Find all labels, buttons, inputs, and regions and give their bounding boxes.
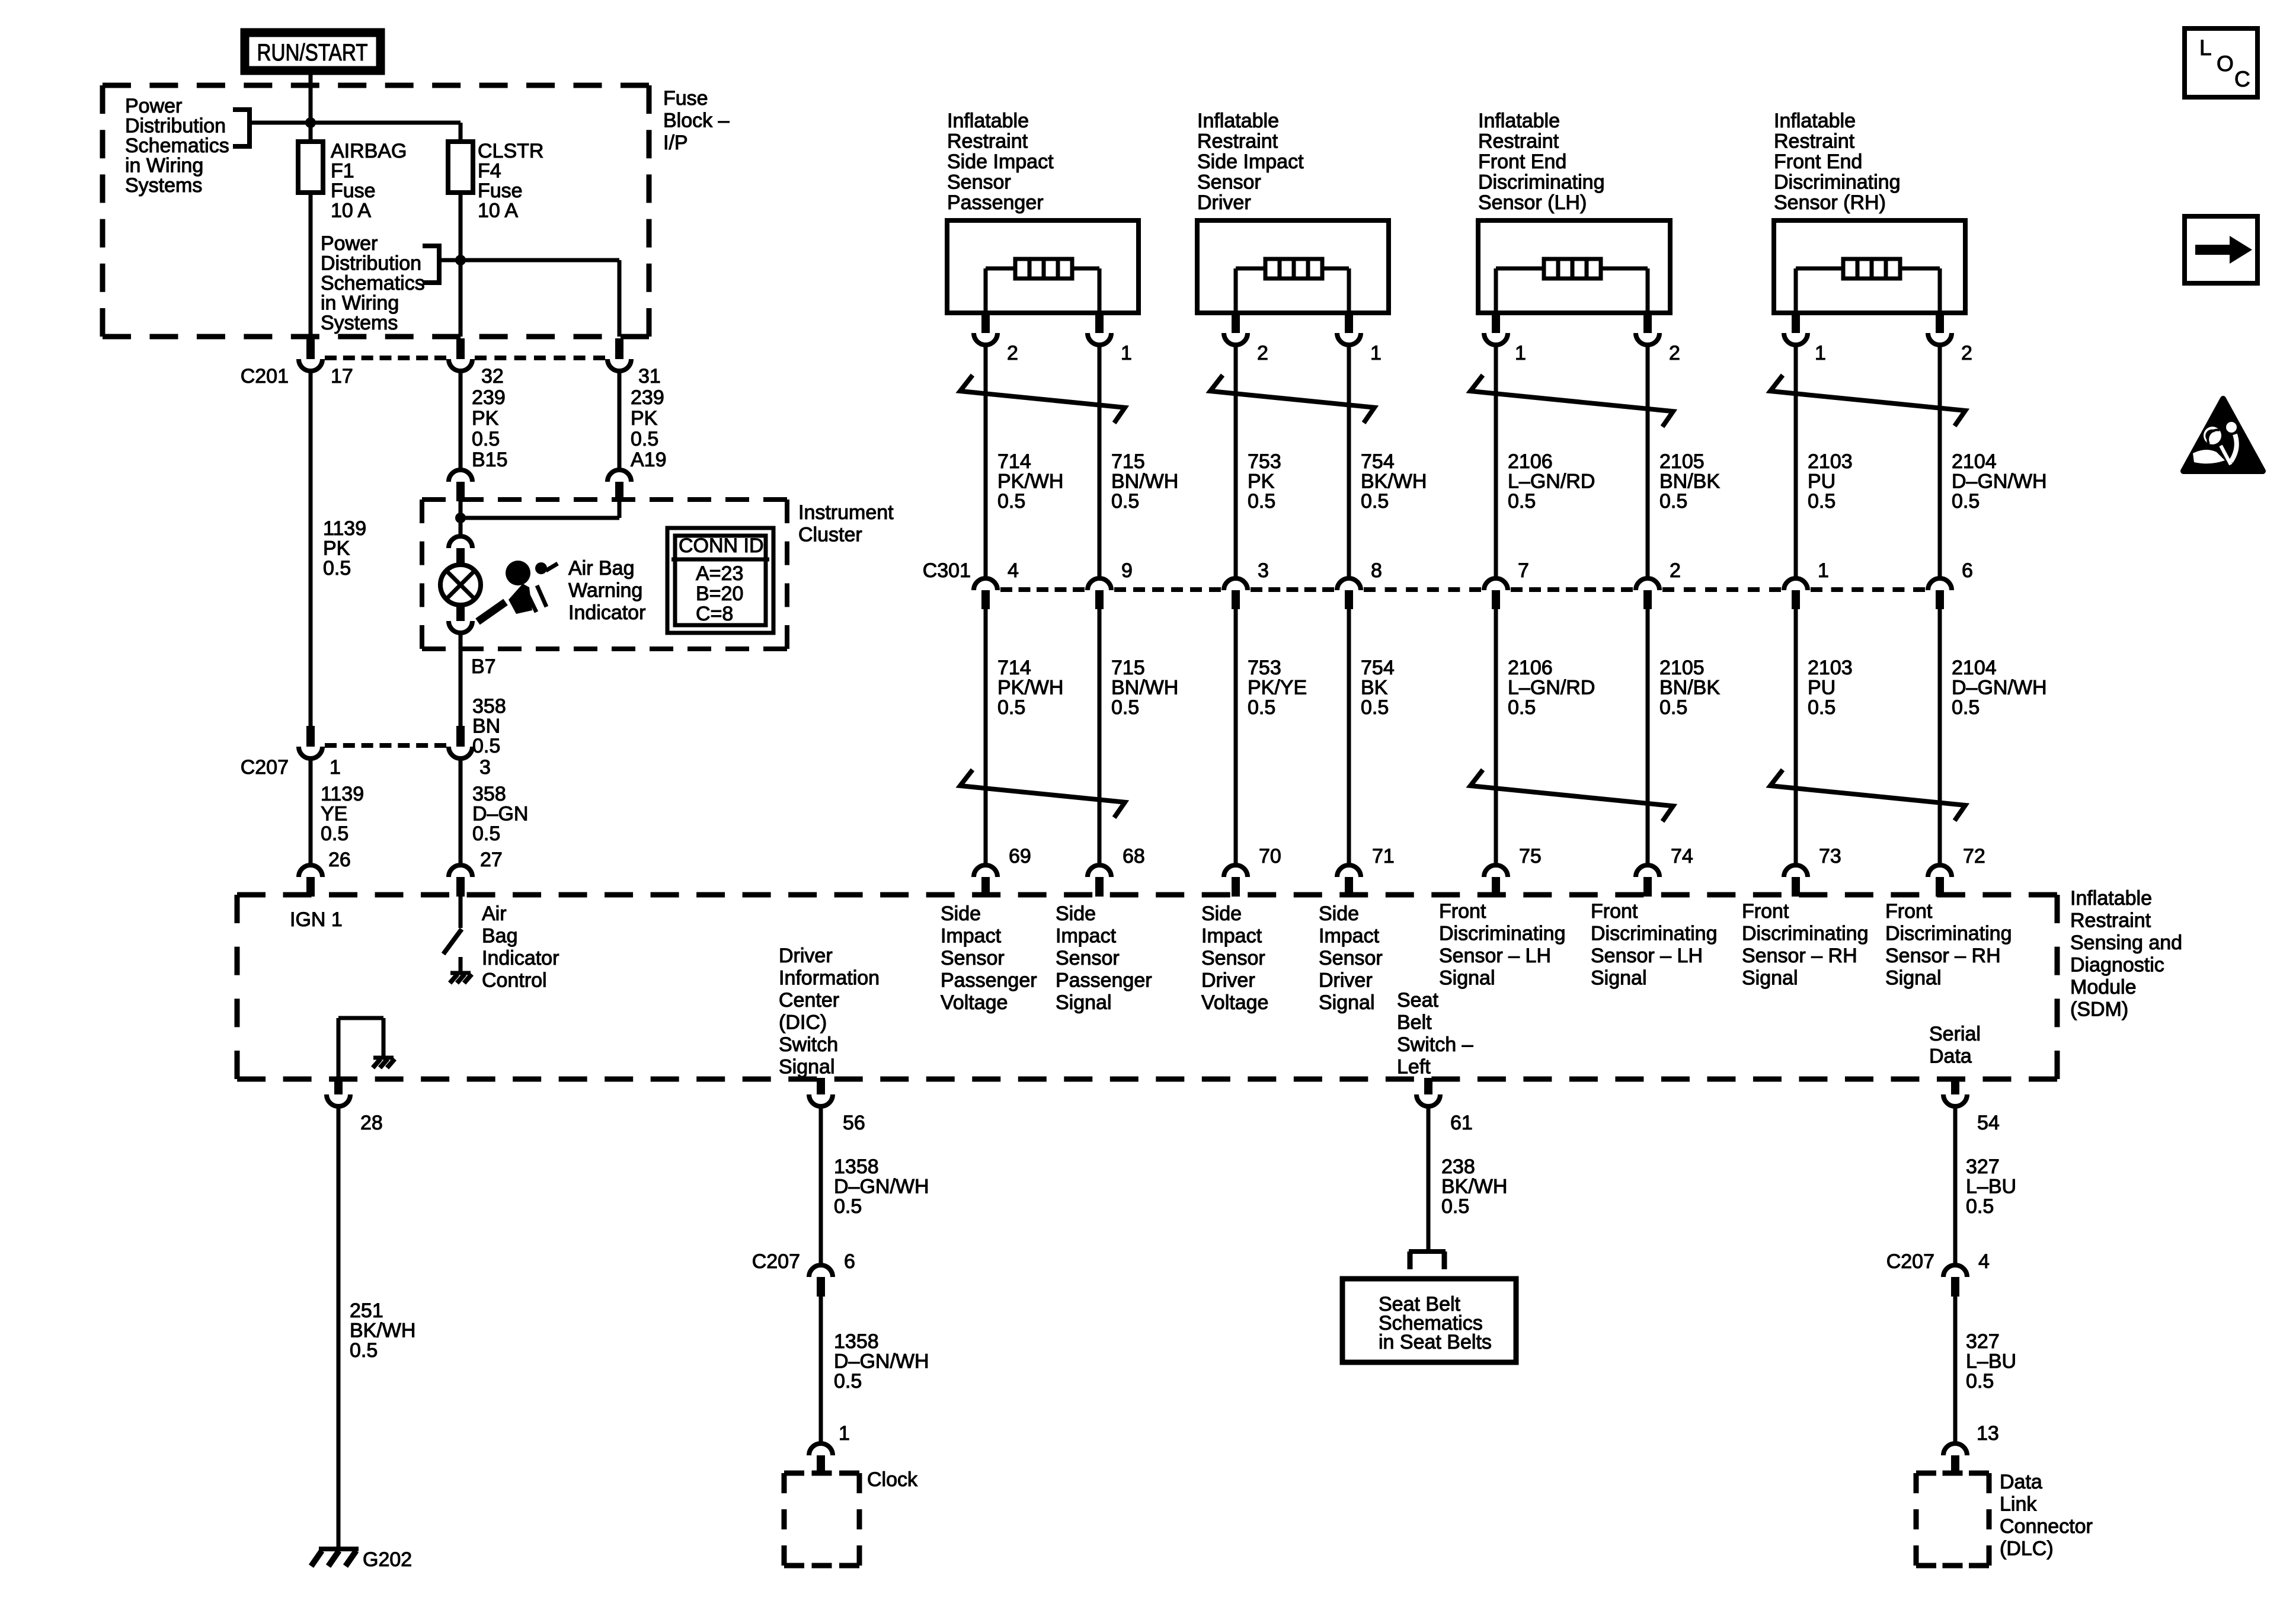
svg-text:358: 358 xyxy=(472,783,506,805)
svg-text:Sensor (LH): Sensor (LH) xyxy=(1478,191,1587,214)
svg-text:Driver: Driver xyxy=(779,945,833,967)
svg-text:Driver: Driver xyxy=(1201,969,1255,992)
svg-text:Switch –: Switch – xyxy=(1397,1033,1473,1056)
svg-text:Side Impact: Side Impact xyxy=(947,151,1054,173)
svg-text:Module: Module xyxy=(2070,976,2137,998)
svg-text:D–GN/WH: D–GN/WH xyxy=(1952,677,2047,699)
svg-text:Discriminating: Discriminating xyxy=(1774,171,1901,194)
svg-text:68: 68 xyxy=(1123,845,1145,868)
svg-text:Sensing and: Sensing and xyxy=(2070,932,2182,954)
svg-text:17: 17 xyxy=(331,365,353,388)
svg-text:0.5: 0.5 xyxy=(1952,490,1980,513)
svg-text:71: 71 xyxy=(1372,845,1395,868)
svg-text:754: 754 xyxy=(1361,450,1395,473)
svg-text:Control: Control xyxy=(482,969,547,992)
svg-text:1139: 1139 xyxy=(321,783,364,805)
svg-text:Driver: Driver xyxy=(1197,191,1251,214)
svg-text:B15: B15 xyxy=(472,449,508,471)
svg-text:10 A: 10 A xyxy=(331,200,371,222)
svg-text:Restraint: Restraint xyxy=(947,130,1028,153)
svg-text:70: 70 xyxy=(1259,845,1281,868)
svg-text:Front: Front xyxy=(1439,900,1486,923)
svg-text:Warning: Warning xyxy=(568,580,642,602)
svg-text:Bag: Bag xyxy=(482,925,518,948)
svg-text:D–GN/WH: D–GN/WH xyxy=(834,1176,929,1198)
svg-text:0.5: 0.5 xyxy=(323,557,351,580)
svg-text:Power: Power xyxy=(125,95,182,117)
svg-text:0.5: 0.5 xyxy=(1966,1370,1994,1393)
svg-text:715: 715 xyxy=(1111,450,1145,473)
svg-text:6: 6 xyxy=(844,1250,855,1273)
svg-text:Power: Power xyxy=(321,232,378,255)
svg-text:Front End: Front End xyxy=(1774,151,1862,173)
svg-text:PK: PK xyxy=(323,537,350,560)
svg-text:I/P: I/P xyxy=(663,132,688,154)
svg-text:Driver: Driver xyxy=(1319,969,1373,992)
svg-text:4: 4 xyxy=(1978,1250,1990,1273)
svg-text:BK/WH: BK/WH xyxy=(1361,470,1427,493)
svg-text:2105: 2105 xyxy=(1659,450,1705,473)
svg-text:Restraint: Restraint xyxy=(1774,130,1855,153)
svg-text:0.5: 0.5 xyxy=(1361,490,1389,513)
svg-text:C=8: C=8 xyxy=(696,603,733,625)
svg-text:C207: C207 xyxy=(241,756,289,779)
svg-text:56: 56 xyxy=(843,1112,865,1134)
svg-text:7: 7 xyxy=(1518,559,1529,582)
svg-text:PU: PU xyxy=(1808,677,1835,699)
svg-text:2106: 2106 xyxy=(1508,450,1553,473)
svg-text:Side: Side xyxy=(1319,902,1359,925)
svg-text:1: 1 xyxy=(1515,342,1526,364)
svg-text:Sensor: Sensor xyxy=(947,171,1011,194)
svg-text:(DLC): (DLC) xyxy=(2000,1538,2054,1560)
svg-text:Discriminating: Discriminating xyxy=(1742,923,1869,945)
svg-text:0.5: 0.5 xyxy=(997,490,1025,513)
svg-text:Air: Air xyxy=(482,902,507,925)
svg-text:Distribution: Distribution xyxy=(125,115,226,137)
svg-text:Signal: Signal xyxy=(1591,967,1647,990)
svg-text:PK: PK xyxy=(631,407,658,430)
svg-text:Voltage: Voltage xyxy=(1201,991,1268,1014)
svg-text:Inflatable: Inflatable xyxy=(1478,110,1560,132)
svg-text:Connector: Connector xyxy=(2000,1515,2093,1538)
svg-text:BN/WH: BN/WH xyxy=(1111,470,1178,493)
svg-text:0.5: 0.5 xyxy=(834,1195,862,1218)
svg-text:74: 74 xyxy=(1671,845,1693,868)
svg-text:Fuse: Fuse xyxy=(478,180,523,202)
svg-text:4: 4 xyxy=(1008,559,1019,582)
svg-text:BK/WH: BK/WH xyxy=(1441,1176,1507,1198)
svg-text:PK/YE: PK/YE xyxy=(1248,677,1307,699)
svg-text:2: 2 xyxy=(1961,342,1972,364)
svg-text:Inflatable: Inflatable xyxy=(1197,110,1279,132)
svg-text:13: 13 xyxy=(1977,1422,1999,1445)
svg-text:BN/BK: BN/BK xyxy=(1659,470,1720,493)
svg-text:A19: A19 xyxy=(631,449,667,471)
svg-text:L–BU: L–BU xyxy=(1966,1176,2016,1198)
svg-text:10 A: 10 A xyxy=(478,200,518,222)
svg-text:0.5: 0.5 xyxy=(1248,696,1275,719)
svg-text:Block –: Block – xyxy=(663,110,730,132)
svg-text:1: 1 xyxy=(839,1422,850,1445)
svg-text:2104: 2104 xyxy=(1952,657,1997,679)
svg-text:YE: YE xyxy=(321,803,347,825)
svg-text:L: L xyxy=(2199,36,2212,60)
svg-text:L–BU: L–BU xyxy=(1966,1350,2016,1373)
svg-text:(SDM): (SDM) xyxy=(2070,998,2128,1021)
svg-text:358: 358 xyxy=(472,695,506,718)
svg-text:0.5: 0.5 xyxy=(1966,1195,1994,1218)
svg-text:Side: Side xyxy=(941,902,981,925)
svg-text:0.5: 0.5 xyxy=(631,428,658,450)
svg-text:Schematics: Schematics xyxy=(321,272,425,295)
svg-text:Belt: Belt xyxy=(1397,1012,1432,1034)
svg-text:0.5: 0.5 xyxy=(1952,696,1980,719)
svg-text:L–GN/RD: L–GN/RD xyxy=(1508,677,1595,699)
svg-text:BN/BK: BN/BK xyxy=(1659,677,1720,699)
svg-text:BN/WH: BN/WH xyxy=(1111,677,1178,699)
svg-text:1: 1 xyxy=(330,756,341,779)
svg-text:Serial: Serial xyxy=(1929,1023,1981,1045)
svg-text:A=23: A=23 xyxy=(696,562,743,585)
svg-text:Signal: Signal xyxy=(1319,991,1375,1014)
svg-text:AIRBAG: AIRBAG xyxy=(331,140,407,162)
svg-text:Signal: Signal xyxy=(1056,991,1112,1014)
svg-text:Sensor: Sensor xyxy=(1201,947,1265,969)
svg-text:Left: Left xyxy=(1397,1056,1431,1078)
svg-text:Distribution: Distribution xyxy=(321,252,421,275)
svg-text:Data: Data xyxy=(2000,1471,2042,1493)
svg-text:714: 714 xyxy=(997,657,1031,679)
svg-text:1: 1 xyxy=(1121,342,1132,364)
svg-text:0.5: 0.5 xyxy=(472,428,500,450)
svg-text:Indicator: Indicator xyxy=(482,947,559,969)
svg-text:28: 28 xyxy=(360,1112,383,1134)
svg-text:0.5: 0.5 xyxy=(1808,696,1835,719)
svg-text:2: 2 xyxy=(1669,342,1680,364)
svg-text:Front: Front xyxy=(1885,900,1933,923)
svg-text:Air Bag: Air Bag xyxy=(568,557,635,580)
svg-text:Signal: Signal xyxy=(1742,967,1798,990)
svg-text:Sensor (RH): Sensor (RH) xyxy=(1774,191,1886,214)
svg-text:Impact: Impact xyxy=(1201,925,1262,948)
svg-text:Fuse: Fuse xyxy=(331,180,376,202)
svg-text:27: 27 xyxy=(480,849,503,871)
svg-text:in Seat Belts: in Seat Belts xyxy=(1379,1331,1492,1353)
svg-text:0.5: 0.5 xyxy=(1659,490,1687,513)
svg-text:2: 2 xyxy=(1670,559,1681,582)
svg-text:2: 2 xyxy=(1007,342,1018,364)
svg-text:Systems: Systems xyxy=(125,174,202,197)
svg-text:Indicator: Indicator xyxy=(568,601,645,624)
svg-text:B=20: B=20 xyxy=(696,582,743,605)
svg-text:D–GN/WH: D–GN/WH xyxy=(834,1350,929,1373)
svg-text:Restraint: Restraint xyxy=(1478,130,1559,153)
svg-text:61: 61 xyxy=(1450,1112,1473,1134)
svg-text:0.5: 0.5 xyxy=(1508,490,1536,513)
svg-text:Side: Side xyxy=(1201,902,1242,925)
svg-text:BN: BN xyxy=(472,715,500,738)
svg-text:Sensor – RH: Sensor – RH xyxy=(1885,945,2001,967)
svg-text:D–GN: D–GN xyxy=(472,803,528,825)
svg-text:75: 75 xyxy=(1519,845,1542,868)
svg-text:Passenger: Passenger xyxy=(941,969,1037,992)
svg-text:1: 1 xyxy=(1815,342,1826,364)
svg-text:251: 251 xyxy=(350,1299,383,1322)
svg-text:Side Impact: Side Impact xyxy=(1197,151,1304,173)
svg-text:C207: C207 xyxy=(1886,1250,1934,1273)
svg-text:B7: B7 xyxy=(471,655,496,678)
svg-text:G202: G202 xyxy=(363,1548,412,1571)
svg-text:Instrument: Instrument xyxy=(798,501,894,524)
svg-text:73: 73 xyxy=(1819,845,1841,868)
svg-text:1: 1 xyxy=(1818,559,1829,582)
svg-text:715: 715 xyxy=(1111,657,1145,679)
svg-text:in Wiring: in Wiring xyxy=(321,292,399,315)
svg-text:Impact: Impact xyxy=(1319,925,1380,948)
svg-text:1358: 1358 xyxy=(834,1156,879,1178)
svg-text:2104: 2104 xyxy=(1952,450,1997,473)
svg-text:2103: 2103 xyxy=(1808,657,1853,679)
svg-text:238: 238 xyxy=(1441,1156,1475,1178)
svg-text:1358: 1358 xyxy=(834,1330,879,1353)
svg-text:31: 31 xyxy=(638,365,661,388)
svg-text:F4: F4 xyxy=(478,160,501,183)
svg-text:26: 26 xyxy=(328,849,351,871)
svg-text:(DIC): (DIC) xyxy=(779,1012,827,1034)
svg-text:0.5: 0.5 xyxy=(1361,696,1389,719)
svg-text:3: 3 xyxy=(479,756,491,779)
svg-text:PK: PK xyxy=(472,407,499,430)
svg-text:CONN ID: CONN ID xyxy=(679,534,764,557)
svg-text:Restraint: Restraint xyxy=(1197,130,1278,153)
svg-text:0.5: 0.5 xyxy=(472,735,500,757)
svg-text:0.5: 0.5 xyxy=(1248,490,1275,513)
svg-text:72: 72 xyxy=(1963,845,1985,868)
svg-text:Signal: Signal xyxy=(1885,967,1942,990)
svg-text:0.5: 0.5 xyxy=(997,696,1025,719)
svg-text:2103: 2103 xyxy=(1808,450,1853,473)
svg-text:Discriminating: Discriminating xyxy=(1885,923,2012,945)
svg-text:8: 8 xyxy=(1371,559,1382,582)
svg-text:Seat: Seat xyxy=(1397,989,1438,1012)
svg-text:0.5: 0.5 xyxy=(1111,490,1139,513)
svg-text:F1: F1 xyxy=(331,160,354,183)
svg-text:Sensor – RH: Sensor – RH xyxy=(1742,945,1857,967)
svg-text:Impact: Impact xyxy=(1056,925,1117,948)
svg-text:Cluster: Cluster xyxy=(798,524,862,546)
svg-text:753: 753 xyxy=(1248,657,1281,679)
svg-text:239: 239 xyxy=(631,386,664,409)
svg-text:Switch: Switch xyxy=(779,1033,838,1056)
svg-text:0.5: 0.5 xyxy=(834,1370,862,1393)
svg-text:327: 327 xyxy=(1966,1330,2000,1353)
svg-text:Signal: Signal xyxy=(1439,967,1495,990)
svg-text:Front: Front xyxy=(1742,900,1789,923)
svg-text:Sensor: Sensor xyxy=(1056,947,1120,969)
svg-text:0.5: 0.5 xyxy=(350,1339,378,1362)
svg-text:0.5: 0.5 xyxy=(1111,696,1139,719)
svg-text:O: O xyxy=(2217,52,2234,76)
svg-text:9: 9 xyxy=(1121,559,1133,582)
svg-text:CLSTR: CLSTR xyxy=(478,140,543,162)
svg-text:PK: PK xyxy=(1248,470,1275,493)
svg-text:PK/WH: PK/WH xyxy=(997,470,1063,493)
svg-text:Data: Data xyxy=(1929,1045,1972,1068)
svg-text:3: 3 xyxy=(1258,559,1269,582)
svg-text:Inflatable: Inflatable xyxy=(2070,887,2152,910)
svg-text:327: 327 xyxy=(1966,1156,2000,1178)
svg-text:Information: Information xyxy=(779,967,880,990)
svg-text:Impact: Impact xyxy=(941,925,1002,948)
svg-text:0.5: 0.5 xyxy=(321,822,348,845)
svg-text:C207: C207 xyxy=(752,1250,800,1273)
svg-text:C201: C201 xyxy=(241,365,289,388)
svg-text:1: 1 xyxy=(1370,342,1382,364)
svg-text:Passenger: Passenger xyxy=(1056,969,1152,992)
svg-text:IGN 1: IGN 1 xyxy=(290,908,343,931)
svg-text:Sensor – LH: Sensor – LH xyxy=(1591,945,1703,967)
svg-text:753: 753 xyxy=(1248,450,1281,473)
svg-text:Restraint: Restraint xyxy=(2070,910,2151,932)
svg-text:BK/WH: BK/WH xyxy=(350,1320,415,1342)
svg-text:Diagnostic: Diagnostic xyxy=(2070,954,2164,977)
svg-text:0.5: 0.5 xyxy=(1808,490,1835,513)
svg-text:239: 239 xyxy=(472,386,506,409)
svg-text:Front End: Front End xyxy=(1478,151,1566,173)
svg-text:RUN/START: RUN/START xyxy=(257,40,368,66)
svg-text:Sensor: Sensor xyxy=(941,947,1005,969)
svg-text:PU: PU xyxy=(1808,470,1835,493)
svg-text:2105: 2105 xyxy=(1659,657,1705,679)
svg-text:754: 754 xyxy=(1361,657,1395,679)
svg-text:Inflatable: Inflatable xyxy=(1774,110,1856,132)
svg-text:L–GN/RD: L–GN/RD xyxy=(1508,470,1595,493)
svg-text:BK: BK xyxy=(1361,677,1388,699)
svg-text:6: 6 xyxy=(1962,559,1973,582)
svg-text:0.5: 0.5 xyxy=(1508,696,1536,719)
svg-text:Fuse: Fuse xyxy=(663,87,708,110)
svg-text:Center: Center xyxy=(779,989,839,1012)
svg-text:Front: Front xyxy=(1591,900,1638,923)
svg-text:Clock: Clock xyxy=(867,1468,918,1491)
svg-text:Discriminating: Discriminating xyxy=(1478,171,1605,194)
svg-text:Schematics: Schematics xyxy=(125,135,229,157)
svg-text:C301: C301 xyxy=(923,559,971,582)
svg-text:Sensor: Sensor xyxy=(1319,947,1383,969)
svg-text:Sensor: Sensor xyxy=(1197,171,1261,194)
svg-text:Discriminating: Discriminating xyxy=(1591,923,1718,945)
svg-text:0.5: 0.5 xyxy=(472,822,500,845)
svg-text:714: 714 xyxy=(997,450,1031,473)
svg-text:2106: 2106 xyxy=(1508,657,1553,679)
svg-text:C: C xyxy=(2234,67,2250,91)
svg-text:Inflatable: Inflatable xyxy=(947,110,1029,132)
svg-text:0.5: 0.5 xyxy=(1659,696,1687,719)
svg-text:54: 54 xyxy=(1977,1112,2000,1134)
svg-text:1139: 1139 xyxy=(323,517,366,540)
svg-text:0.5: 0.5 xyxy=(1441,1195,1469,1218)
svg-text:PK/WH: PK/WH xyxy=(997,677,1063,699)
svg-text:in Wiring: in Wiring xyxy=(125,155,203,177)
svg-text:Passenger: Passenger xyxy=(947,191,1044,214)
svg-text:D–GN/WH: D–GN/WH xyxy=(1952,470,2047,493)
svg-text:Voltage: Voltage xyxy=(941,991,1008,1014)
svg-text:Discriminating: Discriminating xyxy=(1439,923,1566,945)
svg-text:Signal: Signal xyxy=(779,1056,835,1078)
svg-text:2: 2 xyxy=(1257,342,1268,364)
svg-text:Systems: Systems xyxy=(321,312,398,334)
svg-text:69: 69 xyxy=(1009,845,1031,868)
svg-text:Link: Link xyxy=(2000,1493,2037,1516)
svg-text:32: 32 xyxy=(481,365,504,388)
svg-text:Side: Side xyxy=(1056,902,1096,925)
svg-text:Sensor – LH: Sensor – LH xyxy=(1439,945,1551,967)
